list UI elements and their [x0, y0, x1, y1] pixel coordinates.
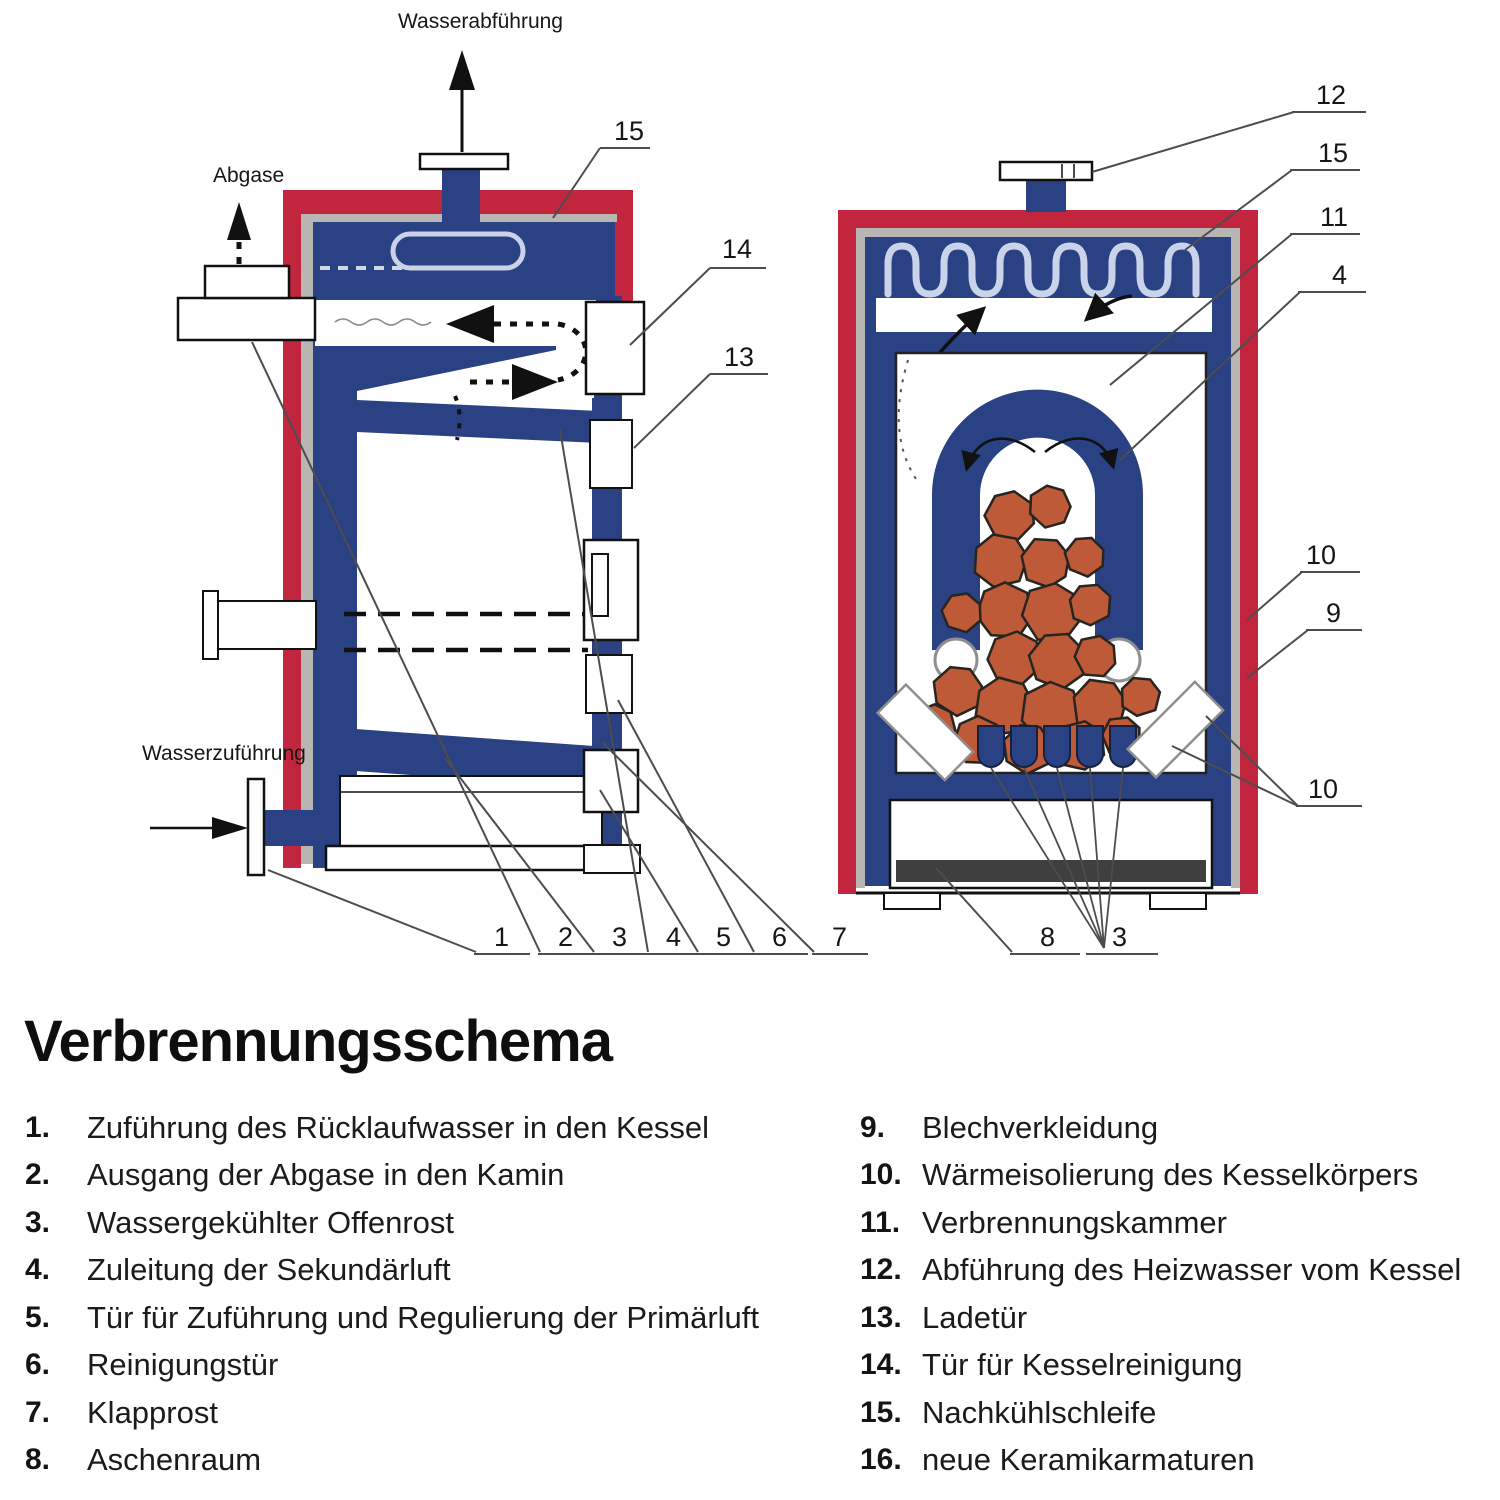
legend-text: Klapprost [87, 1395, 218, 1431]
callout-15b: 15 [1318, 138, 1348, 168]
primary-air-door [584, 750, 638, 812]
legend-text: Verbrennungskammer [922, 1205, 1227, 1241]
callout-1: 1 [494, 922, 509, 952]
callout-14: 14 [722, 234, 752, 264]
callout-11: 11 [1320, 202, 1348, 232]
legend-item-10: 10.Wärmeisolierung des Kesselkörpers [860, 1152, 1490, 1200]
legend-num: 15. [860, 1396, 922, 1430]
legend-item-2: 2.Ausgang der Abgase in den Kamin [25, 1152, 845, 1200]
legend-num: 5. [25, 1301, 87, 1335]
callout-3b: 3 [1112, 922, 1127, 952]
water-out-arrow [449, 50, 475, 90]
legend-item-12: 12.Abführung des Heizwasser vom Kessel [860, 1247, 1490, 1295]
legend-item-7: 7.Klapprost [25, 1389, 845, 1437]
callout-7: 7 [832, 922, 847, 952]
callout-13: 13 [724, 342, 754, 372]
legend-num: 11. [860, 1206, 922, 1240]
legend-text: Tür für Kesselreinigung [922, 1347, 1243, 1383]
legend-text: Wassergekühlter Offenrost [87, 1205, 454, 1241]
callout-10b: 10 [1308, 774, 1338, 804]
callout-6: 6 [772, 922, 787, 952]
legend-text: neue Keramikarmaturen [922, 1442, 1255, 1478]
callout-12: 12 [1316, 80, 1346, 110]
callout-2: 2 [558, 922, 573, 952]
fuel-level-dashes [344, 614, 588, 650]
legend-item-9: 9.Blechverkleidung [860, 1104, 1490, 1152]
right-boiler: 12 15 11 4 10 9 10 8 3 [838, 80, 1366, 954]
legend-num: 10. [860, 1158, 922, 1192]
verbrennungsschema-page: Wasserabführung Abgase Wasserzuführung [0, 0, 1500, 1500]
callout-5: 5 [716, 922, 731, 952]
exhaust-label: Abgase [213, 164, 284, 187]
legend-num: 2. [25, 1158, 87, 1192]
water-out-label: Wasserabführung [398, 10, 563, 33]
legend-text: Reinigungstür [87, 1347, 278, 1383]
legend-item-15: 15.Nachkühlschleife [860, 1389, 1490, 1437]
left-boiler-water-jacket [264, 169, 622, 868]
legend-item-16: 16.neue Keramikarmaturen [860, 1437, 1490, 1485]
legend-text: Ladetür [922, 1300, 1027, 1336]
legend-num: 1. [25, 1111, 87, 1145]
side-bracket [203, 591, 316, 659]
legend-text: Zuführung des Rücklaufwasser in den Kess… [87, 1110, 709, 1146]
callout-15: 15 [614, 116, 644, 146]
legend-item-4: 4.Zuleitung der Sekundärluft [25, 1247, 845, 1295]
legend-item-13: 13.Ladetür [860, 1294, 1490, 1342]
legend-text: Nachkühlschleife [922, 1395, 1156, 1431]
right-foot [1150, 893, 1206, 909]
legend-item-3: 3.Wassergekühlter Offenrost [25, 1199, 845, 1247]
ash-chamber [890, 800, 1212, 888]
legend-item-6: 6.Reinigungstür [25, 1342, 845, 1390]
grate-fingers [978, 726, 1136, 767]
legend-text: Wärmeisolierung des Kesselkörpers [922, 1157, 1418, 1193]
legend-item-14: 14.Tür für Kesselreinigung [860, 1342, 1490, 1390]
legend-column-left: 1.Zuführung des Rücklaufwasser in den Ke… [25, 1104, 845, 1484]
callout-10: 10 [1306, 540, 1336, 570]
callout-9: 9 [1326, 598, 1341, 628]
ash-box [326, 776, 610, 870]
gas-band [876, 298, 1212, 332]
legend-num: 12. [860, 1253, 922, 1287]
legend-text: Ausgang der Abgase in den Kamin [87, 1157, 564, 1193]
heating-water-pipe [1000, 162, 1092, 212]
reinigungs-door [586, 655, 632, 713]
legend-num: 4. [25, 1253, 87, 1287]
legend-num: 14. [860, 1348, 922, 1382]
exhaust-arrow [227, 202, 251, 272]
legend-item-1: 1.Zuführung des Rücklaufwasser in den Ke… [25, 1104, 845, 1152]
left-boiler-doors [584, 302, 644, 873]
callout-8: 8 [1040, 922, 1055, 952]
water-inlet [150, 779, 264, 875]
legend-item-8: 8.Aschenraum [25, 1437, 845, 1485]
callout-4b: 4 [1332, 260, 1347, 290]
legend-text: Aschenraum [87, 1442, 261, 1478]
left-boiler: Wasserabführung Abgase Wasserzuführung [142, 10, 868, 954]
lade-door-handle [592, 554, 608, 616]
legend-text: Tür für Zuführung und Regulierung der Pr… [87, 1300, 759, 1336]
water-in-arrow [212, 817, 248, 839]
legend-num: 6. [25, 1348, 87, 1382]
legend-num: 7. [25, 1396, 87, 1430]
legend-num: 3. [25, 1206, 87, 1240]
legend-text: Blechverkleidung [922, 1110, 1158, 1146]
legend-num: 8. [25, 1443, 87, 1477]
page-title: Verbrennungsschema [24, 1008, 612, 1075]
left-foot [884, 893, 940, 909]
water-outlet-pipe [420, 50, 508, 169]
upper-small-door [590, 420, 632, 488]
legend-item-11: 11.Verbrennungskammer [860, 1199, 1490, 1247]
legend-num: 13. [860, 1301, 922, 1335]
legend-item-5: 5.Tür für Zuführung und Regulierung der … [25, 1294, 845, 1342]
legend-num: 9. [860, 1111, 922, 1145]
legend-text: Abführung des Heizwasser vom Kessel [922, 1252, 1461, 1288]
callout-3: 3 [612, 922, 627, 952]
legend-column-right: 9.Blechverkleidung 10.Wärmeisolierung de… [860, 1104, 1490, 1484]
kesselreinigung-door [586, 302, 644, 394]
water-in-label: Wasserzuführung [142, 742, 306, 765]
legend-num: 16. [860, 1443, 922, 1477]
legend-text: Zuleitung der Sekundärluft [87, 1252, 451, 1288]
callout-4: 4 [666, 922, 681, 952]
boiler-diagram: Wasserabführung Abgase Wasserzuführung [0, 0, 1500, 1000]
